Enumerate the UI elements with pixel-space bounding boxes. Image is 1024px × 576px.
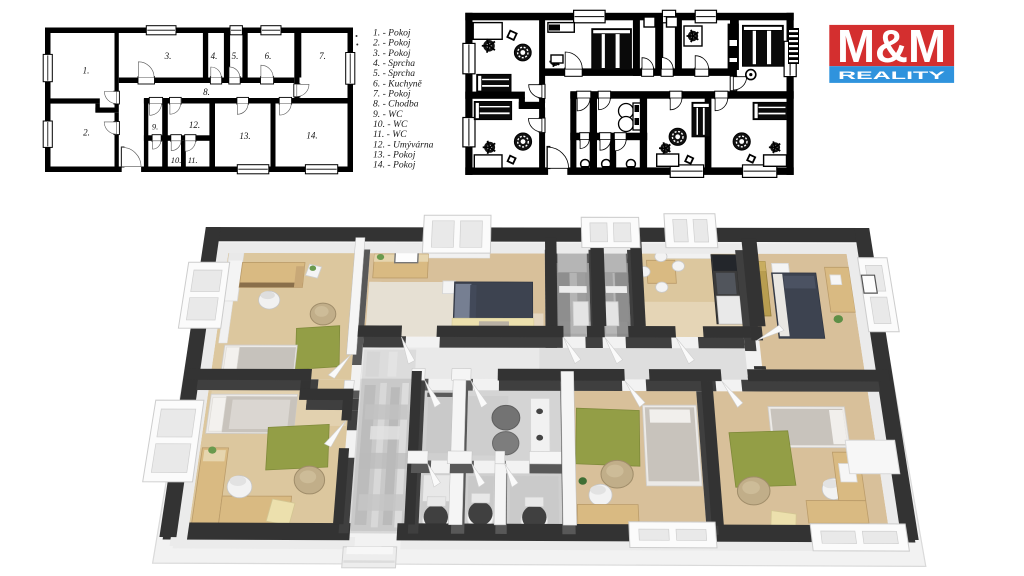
svg-text:6.: 6. xyxy=(265,51,272,61)
svg-text:2.: 2. xyxy=(83,128,90,138)
svg-text:12.: 12. xyxy=(189,120,200,130)
svg-text:REALITY: REALITY xyxy=(838,70,946,82)
svg-text:9.: 9. xyxy=(152,122,158,132)
svg-text:13.: 13. xyxy=(239,131,250,141)
svg-text:11.: 11. xyxy=(188,155,198,165)
svg-text:M&M: M&M xyxy=(837,20,946,72)
svg-text:8.: 8. xyxy=(203,87,210,97)
svg-text:7.: 7. xyxy=(319,51,326,61)
svg-text:1.: 1. xyxy=(83,66,90,76)
svg-text:4.: 4. xyxy=(211,51,218,61)
svg-text:14. - Pokoj: 14. - Pokoj xyxy=(373,160,416,171)
svg-text:14.: 14. xyxy=(306,131,317,141)
svg-text:5.: 5. xyxy=(232,51,239,61)
svg-text:3.: 3. xyxy=(164,51,172,61)
svg-text:10.: 10. xyxy=(171,155,182,165)
